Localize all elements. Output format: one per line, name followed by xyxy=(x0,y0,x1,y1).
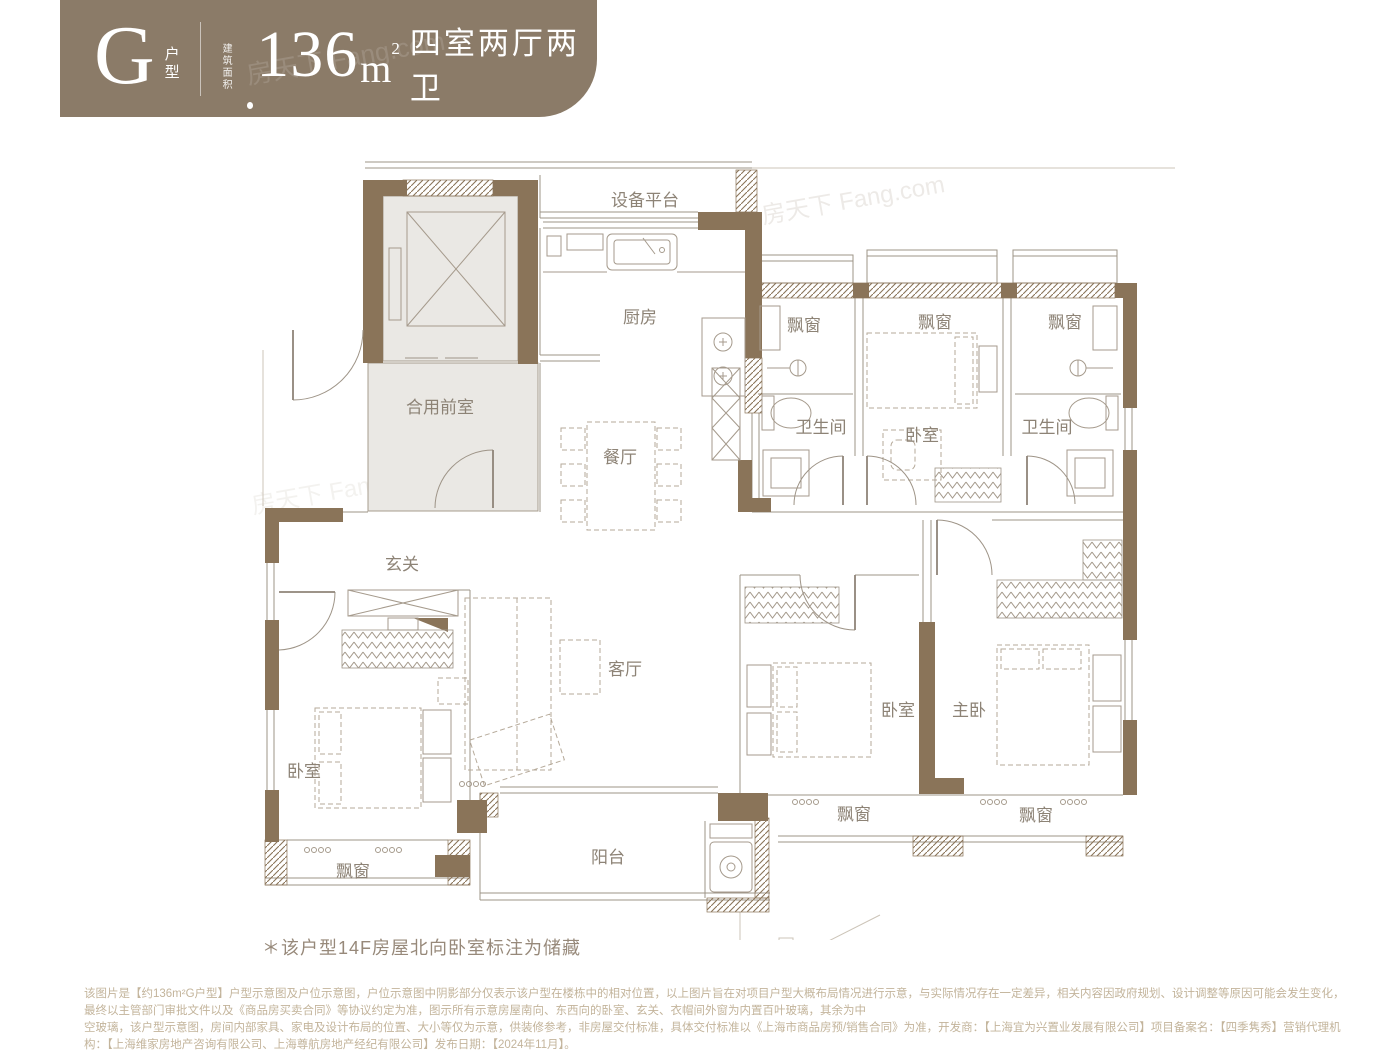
room-label-kitchen: 厨房 xyxy=(623,308,657,327)
elevator-core xyxy=(368,196,538,511)
floorplan-page: G 户型 建筑 面积 136 m2 四室两厅两卫 房天下 Fang.com 房天… xyxy=(0,0,1400,1050)
room-label-bay-window-1: 飘窗 xyxy=(787,316,821,335)
room-label-bathroom-1: 卫生间 xyxy=(796,418,847,437)
disclaimer: 该图片是【约136m²G户型】户型示意图及户位示意图，户位示意图中阴影部分仅表示… xyxy=(84,986,1346,1050)
room-label-bay-window-2: 飘窗 xyxy=(918,313,952,332)
room-label-bay-window-6: 飘窗 xyxy=(1019,806,1053,825)
floorplan-drawing: 设备平台 厨房 合用前室 餐厅 飘窗 飘窗 飘窗 卫生间 卧室 卫生间 玄关 客… xyxy=(255,150,1175,940)
room-label-bathroom-2: 卫生间 xyxy=(1022,418,1073,437)
unit-type-letter: G xyxy=(94,14,155,98)
room-label-living-room: 客厅 xyxy=(608,660,642,679)
unit-type-label: 户型 xyxy=(161,46,182,82)
room-label-bay-window-5: 飘窗 xyxy=(837,805,871,824)
room-label-bay-window-4: 飘窗 xyxy=(336,862,370,881)
room-label-bay-window-3: 飘窗 xyxy=(1048,313,1082,332)
room-label-bedroom-3: 卧室 xyxy=(881,701,915,720)
floorplan-footnote: ＊该户型14F房屋北向卧室标注为储藏 xyxy=(262,934,581,960)
room-label-shared-front-room: 合用前室 xyxy=(406,398,474,417)
room-label-master-bedroom: 主卧 xyxy=(952,701,986,720)
area-unit: m2 xyxy=(360,39,400,92)
disclaimer-line-1: 该图片是【约136m²G户型】户型示意图及户位示意图，户位示意图中阴影部分仅表示… xyxy=(84,986,1346,1020)
room-label-dining-room: 餐厅 xyxy=(603,448,637,467)
area-label: 建筑 面积 xyxy=(223,44,243,92)
room-label-bedroom-2: 卧室 xyxy=(287,762,321,781)
room-label-foyer: 玄关 xyxy=(385,555,419,574)
bullet-dot-icon xyxy=(247,102,253,109)
room-layout-text: 四室两厅两卫 xyxy=(410,18,597,108)
unit-type-badge: G 户型 建筑 面积 136 m2 四室两厅两卫 房天下 Fang.com xyxy=(60,0,597,117)
badge-divider xyxy=(200,22,201,96)
room-label-bedroom-1: 卧室 xyxy=(905,426,939,445)
room-label-equipment-platform: 设备平台 xyxy=(611,191,679,210)
room-label-balcony: 阳台 xyxy=(591,848,625,867)
area-value: 136 xyxy=(256,22,358,88)
disclaimer-line-2: 空玻璃，该户型示意图，房间内部家具、家电及设计布局的位置、大小等仅为示意，供装修… xyxy=(84,1020,1346,1050)
